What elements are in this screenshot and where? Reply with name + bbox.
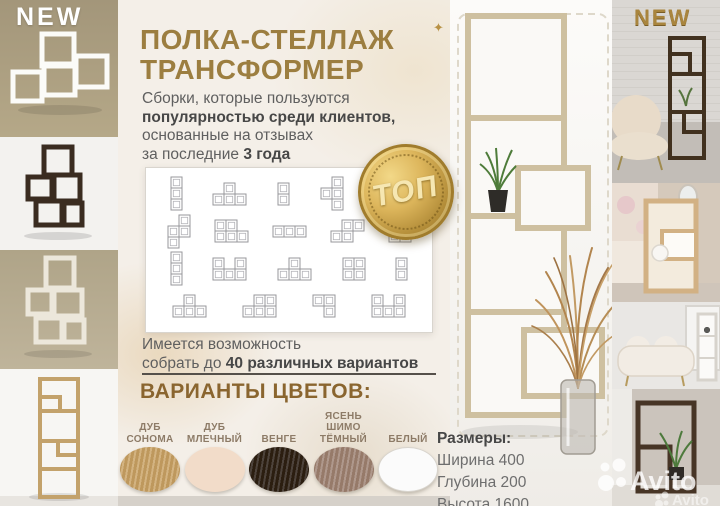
schematic-thumb — [395, 257, 408, 281]
table-edge-strip — [118, 496, 455, 506]
star-icon: ✦ — [433, 20, 444, 36]
schematic-thumb — [342, 257, 366, 281]
swatch-label: ДУБ СОНОМА — [126, 408, 173, 445]
photo-left-3 — [0, 250, 118, 369]
top-badge-label: ТОП — [373, 169, 440, 214]
title-line-1: ПОЛКА-СТЕЛЛАЖ — [140, 25, 456, 55]
swatch-color-oval — [120, 447, 180, 492]
schematic-thumb — [272, 225, 307, 238]
swatch-yasen-shimo: ЯСЕНЬ ШИМО ТЁМНЫЙ — [313, 408, 375, 492]
livingroom-scene — [612, 302, 720, 389]
schematic-thumb — [172, 294, 207, 318]
swatch-bely: БЕЛЫЙ — [377, 408, 439, 492]
avito-dots-icon — [598, 459, 626, 492]
swatch-dub-mlechny: ДУБ МЛЕЧНЫЙ — [184, 408, 246, 492]
swatch-color-oval — [314, 447, 374, 492]
intro-line-1: Сборки, которые пользуются — [142, 90, 452, 109]
schematic-row — [155, 288, 423, 326]
schematic-thumb — [214, 219, 249, 243]
schematic-thumb — [277, 257, 312, 281]
sphere-decor-icon — [652, 245, 668, 261]
poster: NEW — [0, 0, 720, 506]
schematic-thumb — [170, 176, 183, 211]
dimension-width: Ширина 400 — [437, 450, 567, 472]
photo-right-3 — [612, 302, 720, 389]
schematic-thumb — [212, 257, 247, 281]
photo-right-1: NEW — [612, 0, 720, 183]
color-swatches: ДУБ СОНОМА ДУБ МЛЕЧНЫЙ ВЕНГЕ ЯСЕНЬ ШИМО … — [119, 408, 439, 492]
schematic-thumb — [212, 182, 247, 206]
variants-note: Имеется возможность собрать до 40 различ… — [142, 336, 452, 373]
swatch-label: ДУБ МЛЕЧНЫЙ — [187, 408, 242, 445]
schematic-thumb — [371, 294, 406, 318]
intro-line-3: основанные на отзывах — [142, 127, 452, 146]
schematic-thumb — [312, 294, 336, 318]
new-badge-left: NEW — [16, 3, 83, 32]
colors-heading: ВАРИАНТЫ ЦВЕТОВ: — [140, 380, 371, 404]
schematic-thumb — [170, 251, 183, 286]
swatch-label: БЕЛЫЙ — [388, 408, 427, 445]
page-title: ПОЛКА-СТЕЛЛАЖ ТРАНСФОРМЕР — [140, 25, 456, 85]
schematic-thumb — [330, 219, 365, 243]
new-badge-right: NEW — [634, 5, 691, 31]
small-plant-icon — [679, 88, 692, 106]
photo-left-4 — [0, 369, 118, 506]
schematic-row — [155, 250, 423, 288]
bedroom-scene — [612, 183, 720, 302]
sofa-icon — [618, 336, 694, 386]
avito-watermark-echo: Avito — [672, 492, 709, 506]
schematic-thumb — [277, 182, 290, 206]
swatch-dub-sonoma: ДУБ СОНОМА — [119, 408, 181, 492]
note-line-1: Имеется возможность — [142, 336, 452, 355]
white-shelf-icon — [698, 314, 716, 380]
photo-right-2 — [612, 183, 720, 302]
dark-shelf-totem-icon — [0, 137, 118, 250]
dimensions-block: Размеры: Ширина 400 Глубина 200 Высота 1… — [437, 428, 567, 506]
light-shelf-totem-icon — [0, 250, 118, 369]
schematic-thumb — [320, 176, 344, 211]
swatch-label: ЯСЕНЬ ШИМО ТЁМНЫЙ — [320, 408, 367, 445]
photo-left-1: NEW — [0, 0, 118, 137]
swatch-color-oval — [249, 447, 309, 492]
schematic-thumb — [167, 214, 191, 249]
title-line-2: ТРАНСФОРМЕР — [140, 55, 456, 85]
schematic-thumb — [242, 294, 277, 318]
intro-line-2: популярностью среди клиентов, — [142, 109, 452, 128]
divider-line — [142, 373, 436, 375]
oak-tower-shelf-icon — [0, 369, 118, 506]
dimension-depth: Глубина 200 — [437, 472, 567, 494]
swatch-label: ВЕНГЕ — [262, 408, 297, 445]
dimensions-heading: Размеры: — [437, 428, 567, 450]
swatch-color-oval — [185, 447, 245, 492]
swatch-color-oval — [378, 447, 438, 492]
swatch-venge: ВЕНГЕ — [248, 408, 310, 492]
note-line-2: собрать до 40 различных вариантов — [142, 355, 452, 374]
avito-watermark: Avito Avito — [596, 456, 720, 506]
oak-shelf-icon — [646, 201, 696, 291]
photo-left-2 — [0, 137, 118, 250]
dimension-height: Высота 1600 — [437, 494, 567, 506]
